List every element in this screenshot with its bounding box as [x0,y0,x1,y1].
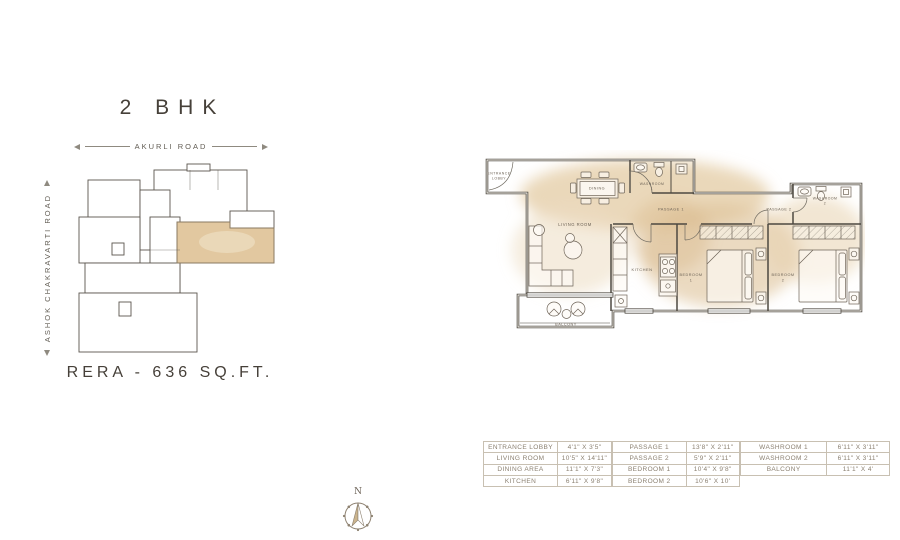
balcony-furniture [547,302,585,319]
compass-north-label: N [354,487,362,497]
svg-text:1: 1 [651,187,653,191]
label-living-room: LIVING ROOM [558,222,591,227]
label-bedroom1: BEDROOM [679,273,702,277]
compass-north-icon: N [336,483,380,539]
highlighted-unit [177,222,274,263]
table-row: WASHROOM 26'11" X 3'11" [741,453,889,464]
label-bedroom2: BEDROOM [771,273,794,277]
table-row: WASHROOM 16'11" X 3'11" [741,442,889,453]
table-row: LIVING ROOM10'5" X 14'11" [484,453,611,464]
label-kitchen: KITCHEN [631,267,652,272]
table-row: PASSAGE 113'8" X 2'11" [613,442,739,453]
arrow-left-icon [74,144,80,150]
dimension-table-3: WASHROOM 16'11" X 3'11" WASHROOM 26'11" … [740,441,890,476]
table-row: BEDROOM 210'6" X 10' [613,476,739,486]
road-label-akurli: AKURLI ROAD [74,142,268,151]
table-row: ENTRANCE LOBBY4'1" X 3'5" [484,442,611,453]
label-washroom2: WASHROOM [813,197,838,201]
table-row: KITCHEN6'11" X 9'8" [484,476,611,486]
table-row: DINING AREA11'1" X 7'3" [484,465,611,476]
table-row: PASSAGE 25'9" X 2'11" [613,453,739,464]
label-washroom1: WASHROOM [640,182,665,186]
table-row: BALCONY11'1" X 4' [741,465,889,475]
label-passage2: PASSAGE 2 [767,208,792,212]
rera-area-label: RERA - 636 SQ.FT. [60,364,280,382]
svg-text:2: 2 [782,279,785,283]
floor-plan: ENTRANCE LOBBY DINING WASHROOM 1 PASSAGE… [475,150,865,345]
svg-text:1: 1 [690,279,693,283]
page-background: 2 BHK AKURLI ROAD ASHOK CHAKRAVARTI ROAD [0,0,900,540]
dimension-table-1: ENTRANCE LOBBY4'1" X 3'5" LIVING ROOM10'… [483,441,612,487]
label-entrance-lobby: ENTRANCE [487,172,510,176]
unit-type-title: 2 BHK [75,96,270,120]
label-dining: DINING [589,187,605,191]
label-balcony: BALCONY [555,323,577,327]
arrow-right-icon [262,144,268,150]
key-plan [42,160,277,360]
dimension-table-2: PASSAGE 113'8" X 2'11" PASSAGE 25'9" X 2… [612,441,740,487]
svg-text:2: 2 [824,202,826,206]
road-top-label: AKURLI ROAD [135,142,208,151]
table-row: BEDROOM 110'4" X 9'8" [613,465,739,476]
svg-text:LOBBY: LOBBY [492,177,506,181]
label-passage1: PASSAGE 1 [658,207,684,212]
